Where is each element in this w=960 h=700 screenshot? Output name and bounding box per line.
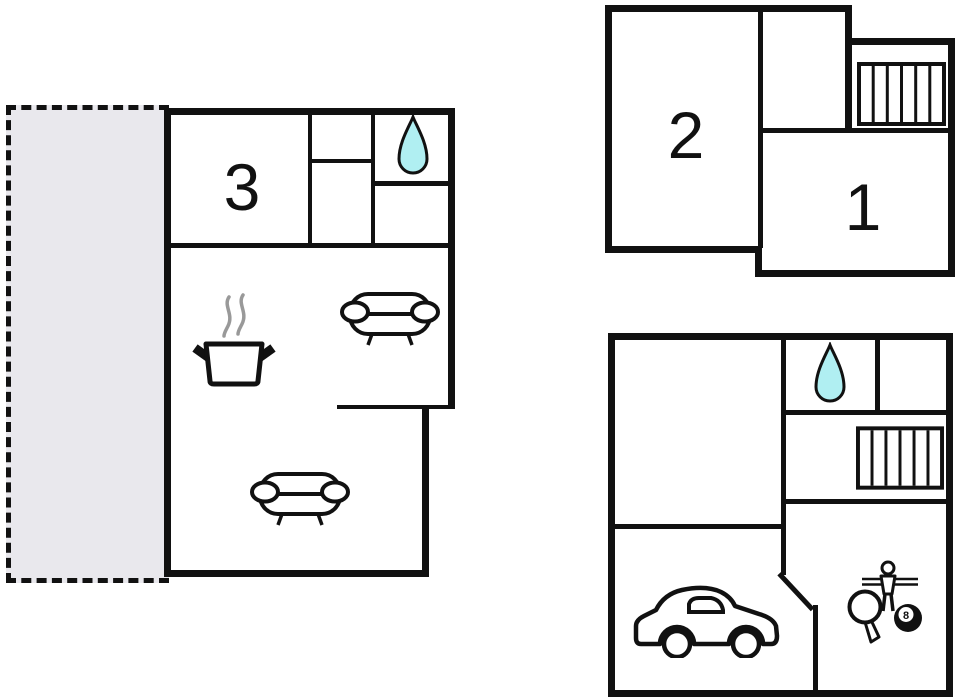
car-icon — [633, 582, 785, 658]
wall-segment — [760, 128, 948, 133]
water-drop-icon — [396, 114, 430, 180]
wall-segment — [373, 181, 450, 186]
wall-segment — [337, 405, 450, 409]
terrace-dashed-area — [6, 105, 169, 583]
wall-segment — [164, 108, 171, 577]
water-drop-icon — [813, 342, 847, 408]
wall-segment — [605, 5, 852, 12]
upper-floor-plan: 2 1 — [605, 5, 955, 277]
ball-number: 8 — [903, 610, 909, 622]
wall-segment — [422, 405, 429, 577]
sofa-icon — [250, 468, 350, 526]
wall-segment — [845, 5, 852, 133]
wall-segment — [605, 5, 612, 253]
room-2-label: 2 — [646, 100, 726, 170]
wall-segment — [783, 410, 953, 415]
wall-segment — [946, 333, 953, 697]
sofa-icon — [340, 288, 440, 346]
games-icons: 8 — [840, 553, 932, 649]
wall-segment — [310, 159, 373, 163]
table-tennis-paddle-icon — [850, 592, 881, 643]
wall-segment — [875, 340, 880, 412]
ground-floor-plan: 3 — [6, 105, 455, 577]
wall-segment — [948, 38, 955, 277]
billiard-8-ball-icon: 8 — [894, 604, 922, 632]
wall-segment — [448, 108, 455, 409]
wall-segment — [605, 246, 762, 253]
wall-segment — [608, 333, 615, 697]
wall-segment — [755, 270, 955, 277]
wall-segment — [371, 113, 375, 245]
stairs-icon — [857, 62, 946, 126]
wall-segment — [608, 690, 953, 697]
wall-segment — [608, 333, 953, 340]
wall-segment — [845, 38, 955, 45]
wall-segment — [783, 499, 953, 504]
wall-segment — [164, 570, 429, 577]
room-1-label: 1 — [823, 172, 903, 242]
wall-segment — [615, 524, 783, 529]
stairs-icon — [856, 426, 944, 490]
basement-plan: 8 — [608, 333, 953, 697]
cooking-pot-icon — [188, 292, 280, 388]
room-3-label: 3 — [202, 152, 282, 222]
wall-segment — [781, 340, 786, 575]
wall-segment — [813, 605, 818, 690]
wall-segment — [308, 113, 312, 245]
